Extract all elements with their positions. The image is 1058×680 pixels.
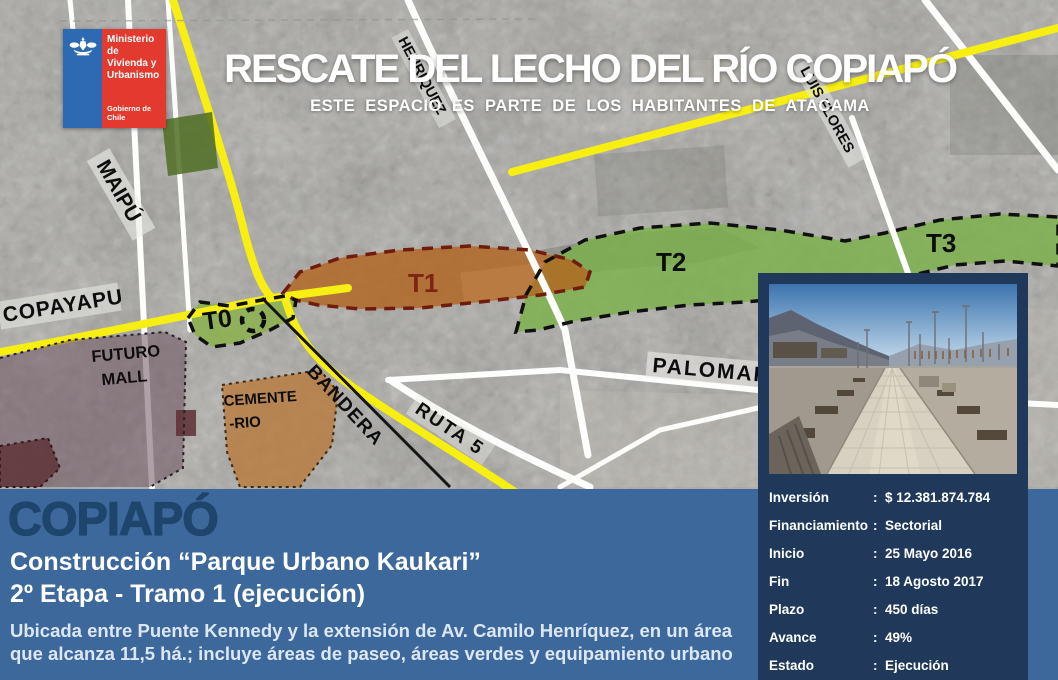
detail-value: $ 12.381.874.784	[885, 490, 1017, 505]
svg-text:-RIO: -RIO	[229, 413, 262, 432]
detail-row-inversion: Inversión:$ 12.381.874.784	[769, 483, 1017, 511]
detail-row-estado: Estado:Ejecución	[769, 651, 1017, 679]
slide-root: MAIPÚ COPAYAPU HENRIQUEZ LUIS FLORES PAL…	[0, 0, 1058, 680]
logo-coat-of-arms	[63, 29, 102, 128]
zone-plaza-green	[162, 112, 218, 176]
project-detail-panel: Inversión:$ 12.381.874.784 Financiamient…	[758, 273, 1028, 680]
detail-row-inicio: Inicio:25 Mayo 2016	[769, 539, 1017, 567]
government-label: Gobierno de Chile	[107, 104, 163, 122]
map-zone-label-t1: T1	[408, 268, 438, 298]
svg-text:T0: T0	[201, 304, 234, 336]
map-zone-label-t2: T2	[656, 247, 686, 277]
ministry-name: Ministerio de Vivienda y Urbanismo	[107, 34, 163, 82]
page-title: RESCATE DEL LECHO DEL RÍO COPIAPÓ	[218, 48, 962, 90]
detail-value: 18 Agosto 2017	[885, 574, 1017, 589]
detail-label: Plazo	[769, 602, 873, 617]
chile-emblem-icon	[67, 34, 99, 64]
detail-label: Inicio	[769, 546, 873, 561]
detail-label: Avance	[769, 630, 873, 645]
detail-row-avance: Avance:49%	[769, 623, 1017, 651]
walkway-photo-scene	[769, 284, 1017, 474]
project-details-table: Inversión:$ 12.381.874.784 Financiamient…	[769, 483, 1017, 679]
header: RESCATE DEL LECHO DEL RÍO COPIAPÓ ESTE E…	[218, 48, 962, 116]
page-subtitle: ESTE ESPACIO ES PARTE DE LOS HABITANTES …	[218, 97, 962, 116]
detail-label: Inversión	[769, 490, 873, 505]
detail-value: 25 Mayo 2016	[885, 546, 1017, 561]
detail-value: 450 días	[885, 602, 1017, 617]
detail-row-plazo: Plazo:450 días	[769, 595, 1017, 623]
map-zone-label-t3: T3	[926, 228, 956, 258]
detail-label: Financiamiento	[769, 518, 873, 533]
map-zone-label-t0: T0	[201, 304, 234, 336]
detail-label: Fin	[769, 574, 873, 589]
detail-row-fin: Fin:18 Agosto 2017	[769, 567, 1017, 595]
zone-maroon-small	[176, 410, 196, 436]
construction-photo	[769, 284, 1017, 474]
detail-value: 49%	[885, 630, 1017, 645]
logo-text-block: Ministerio de Vivienda y Urbanismo Gobie…	[102, 29, 166, 128]
detail-label: Estado	[769, 658, 873, 673]
minvu-logo: Ministerio de Vivienda y Urbanismo Gobie…	[63, 29, 166, 128]
detail-row-financiamiento: Financiamiento:Sectorial	[769, 511, 1017, 539]
detail-value: Ejecución	[885, 658, 1017, 673]
detail-value: Sectorial	[885, 518, 1017, 533]
